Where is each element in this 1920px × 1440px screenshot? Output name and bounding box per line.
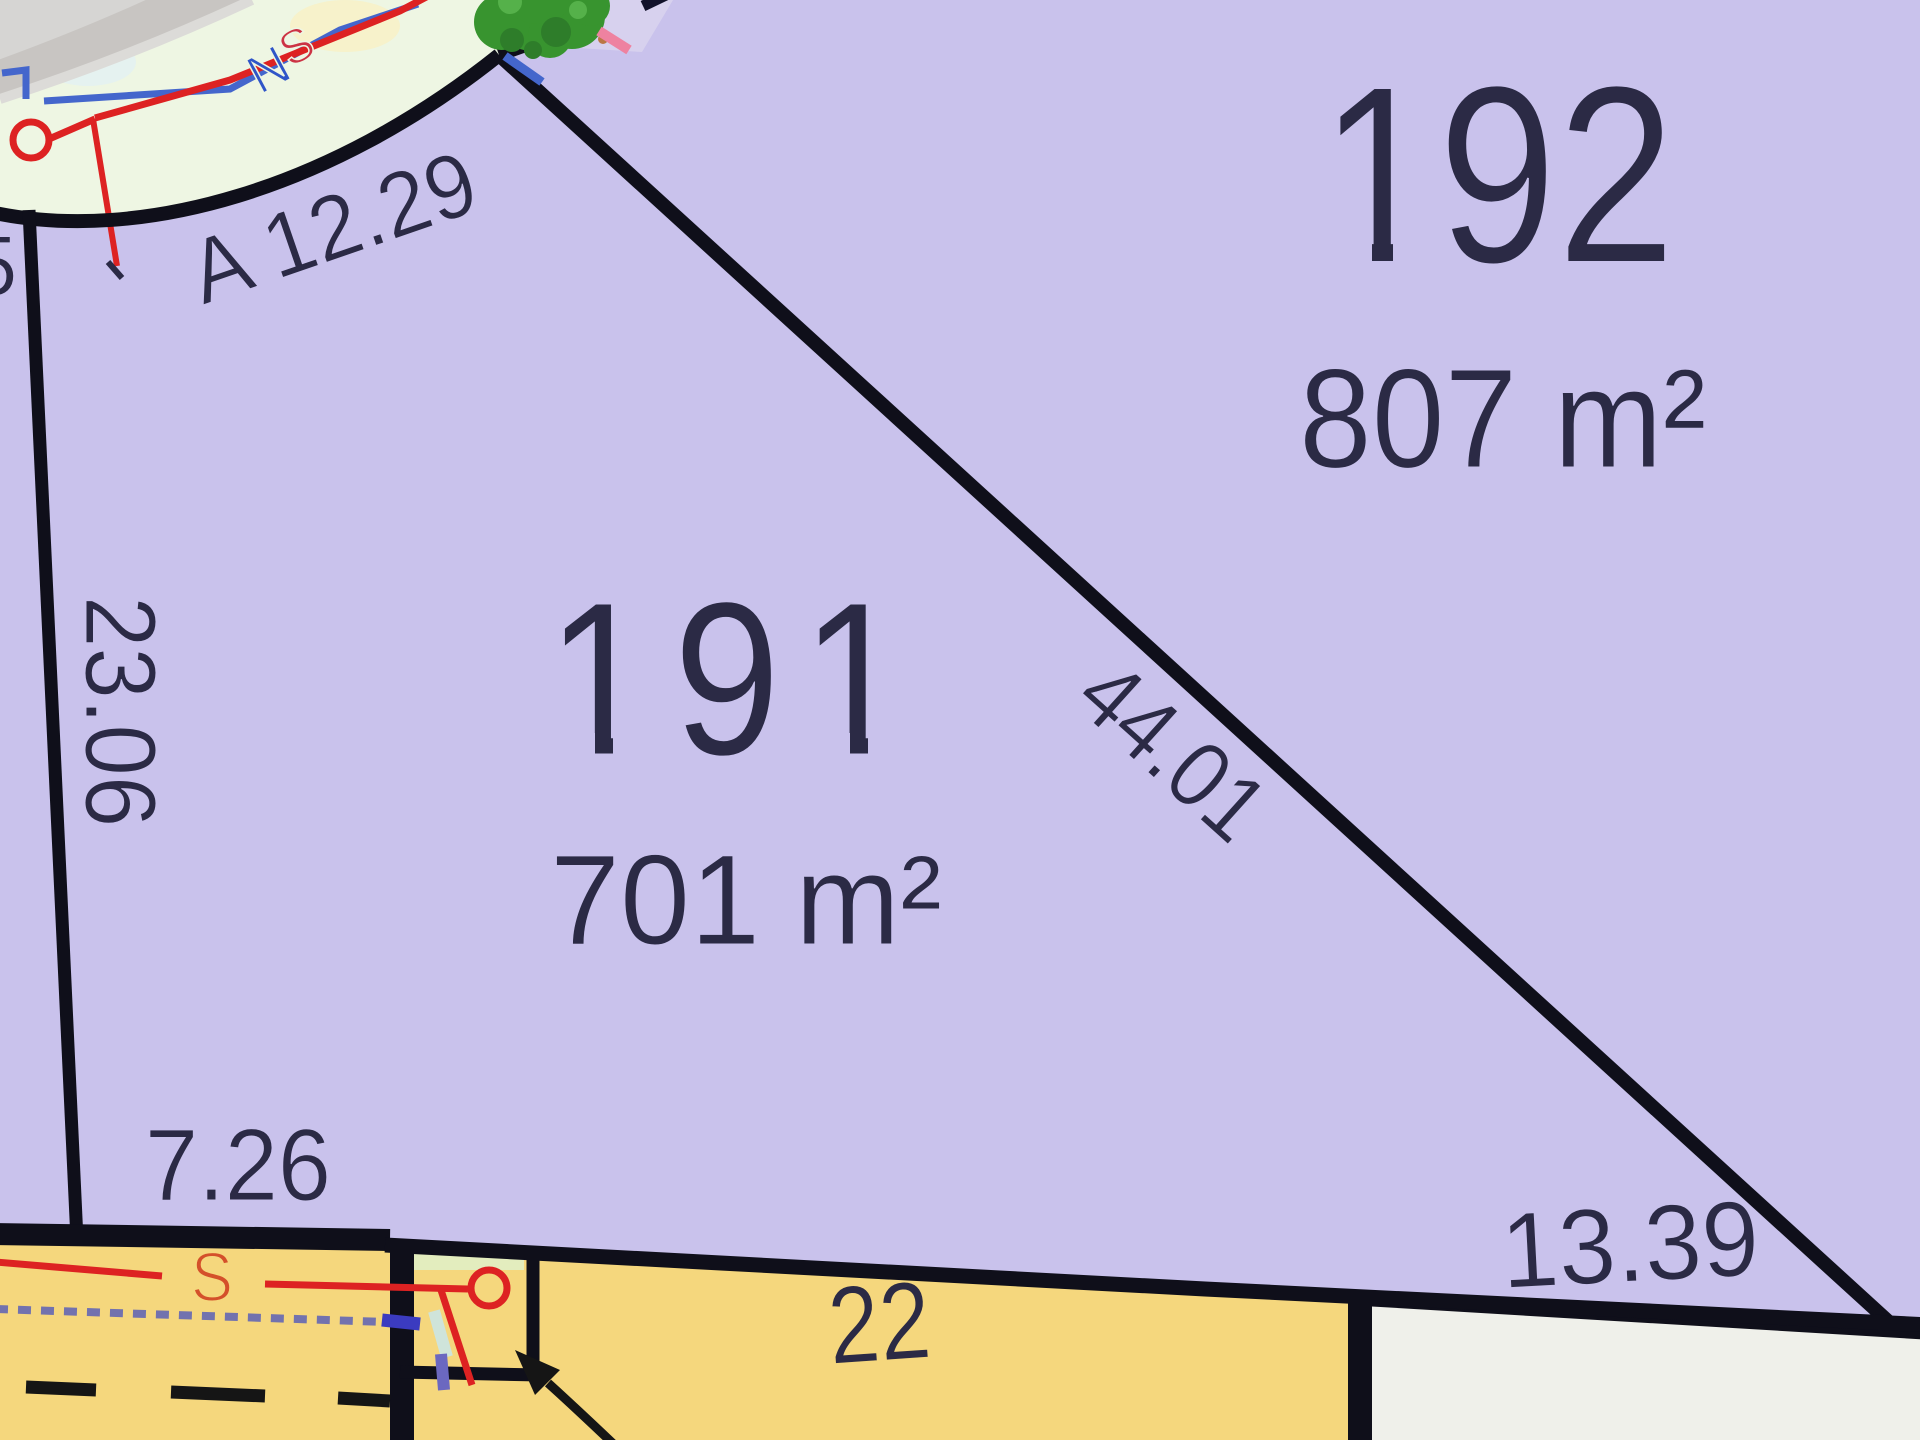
svg-text:807 m²: 807 m² <box>1299 339 1706 497</box>
svg-text:5: 5 <box>0 219 17 314</box>
svg-text:701 m²: 701 m² <box>550 828 942 971</box>
svg-text:13.39: 13.39 <box>1498 1179 1762 1311</box>
svg-text:S: S <box>191 1239 233 1317</box>
svg-text:191: 191 <box>546 557 928 801</box>
svg-text:23.06: 23.06 <box>64 596 175 827</box>
svg-text:7.26: 7.26 <box>145 1108 331 1222</box>
svg-text:22: 22 <box>824 1258 934 1388</box>
svg-text:192: 192 <box>1319 33 1676 316</box>
